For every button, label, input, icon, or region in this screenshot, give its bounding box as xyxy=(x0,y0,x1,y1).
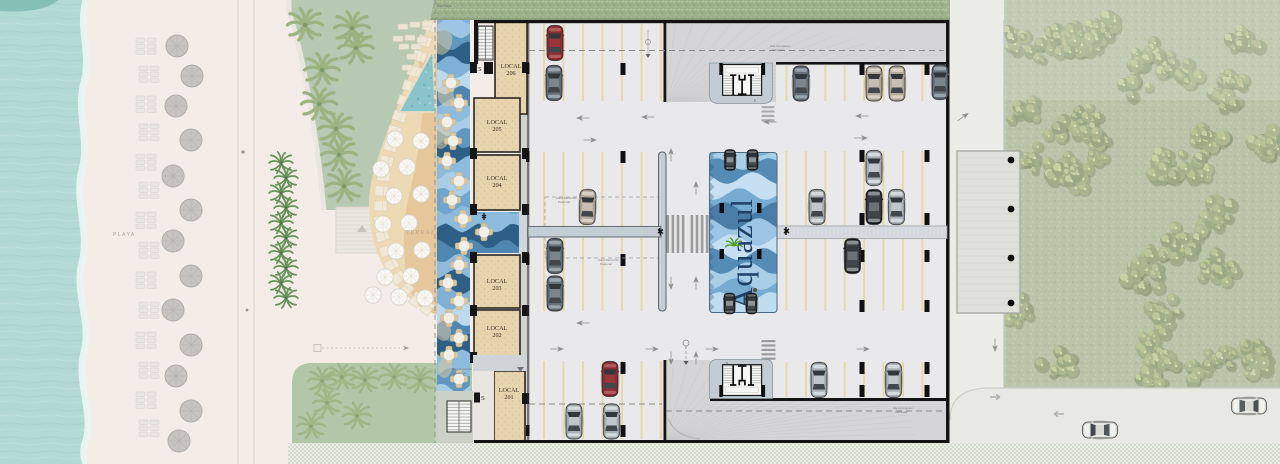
svg-text:204: 204 xyxy=(492,182,501,189)
svg-text:Peatonal: Peatonal xyxy=(454,371,466,375)
svg-text:LOCAL: LOCAL xyxy=(487,325,508,332)
svg-text:205: 205 xyxy=(492,126,501,133)
svg-text:LOCAL: LOCAL xyxy=(499,387,520,394)
svg-text:201: 201 xyxy=(504,394,513,401)
svg-text:203: 203 xyxy=(492,285,501,292)
svg-text:b: b xyxy=(726,361,728,365)
svg-text:TERRAZA: TERRAZA xyxy=(406,230,441,236)
svg-text:LOCAL: LOCAL xyxy=(501,63,522,70)
svg-text:202: 202 xyxy=(492,332,501,339)
svg-text:Peatonal: Peatonal xyxy=(600,262,612,266)
svg-text:LOCAL: LOCAL xyxy=(487,119,508,126)
svg-text:Vehicular: Vehicular xyxy=(772,48,784,52)
svg-text:Peatonal: Peatonal xyxy=(558,200,570,204)
svg-text:2da Etapa: 2da Etapa xyxy=(437,4,452,8)
svg-text:b: b xyxy=(754,99,756,103)
svg-text:206: 206 xyxy=(506,70,515,77)
svg-text:PLAYA: PLAYA xyxy=(113,232,136,238)
svg-text:LOCAL: LOCAL xyxy=(487,175,508,182)
svg-text:S: S xyxy=(481,396,485,402)
svg-text:LOCAL: LOCAL xyxy=(487,278,508,285)
svg-text:Vehicular: Vehicular xyxy=(895,410,907,414)
